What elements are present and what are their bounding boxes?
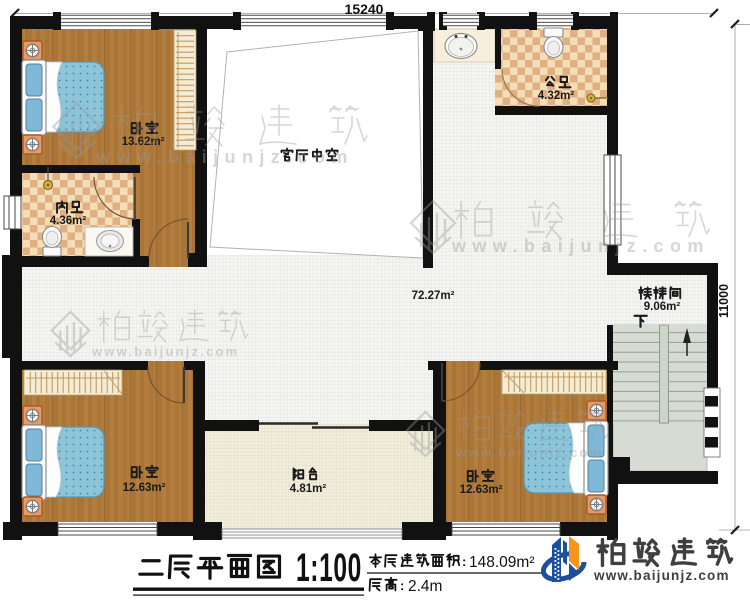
svg-text::: : <box>462 554 466 569</box>
svg-text:www.baijunjz.com: www.baijunjz.com <box>593 568 730 583</box>
svg-text:www.baijunjz.com: www.baijunjz.com <box>451 236 710 256</box>
svg-text:4.81m²: 4.81m² <box>290 483 327 495</box>
svg-text:11000: 11000 <box>717 284 731 318</box>
svg-text:2.4m: 2.4m <box>408 578 442 595</box>
svg-text:www.baijunjz.com: www.baijunjz.com <box>91 344 239 359</box>
svg-text:12.63m²: 12.63m² <box>123 482 166 494</box>
svg-text:4.32m²: 4.32m² <box>538 90 575 102</box>
svg-text:www.baijunjz.com: www.baijunjz.com <box>455 445 603 460</box>
svg-text:72.27m²: 72.27m² <box>412 290 455 302</box>
svg-text::: : <box>400 578 404 593</box>
svg-text:148.09m²: 148.09m² <box>469 554 534 571</box>
svg-text:12.63m²: 12.63m² <box>460 484 503 496</box>
svg-text:1:100: 1:100 <box>296 546 362 591</box>
svg-text:www.baijunjz.com: www.baijunjz.com <box>95 147 354 167</box>
svg-text:4.36m²: 4.36m² <box>50 215 87 227</box>
svg-text:9.06m²: 9.06m² <box>644 301 681 313</box>
